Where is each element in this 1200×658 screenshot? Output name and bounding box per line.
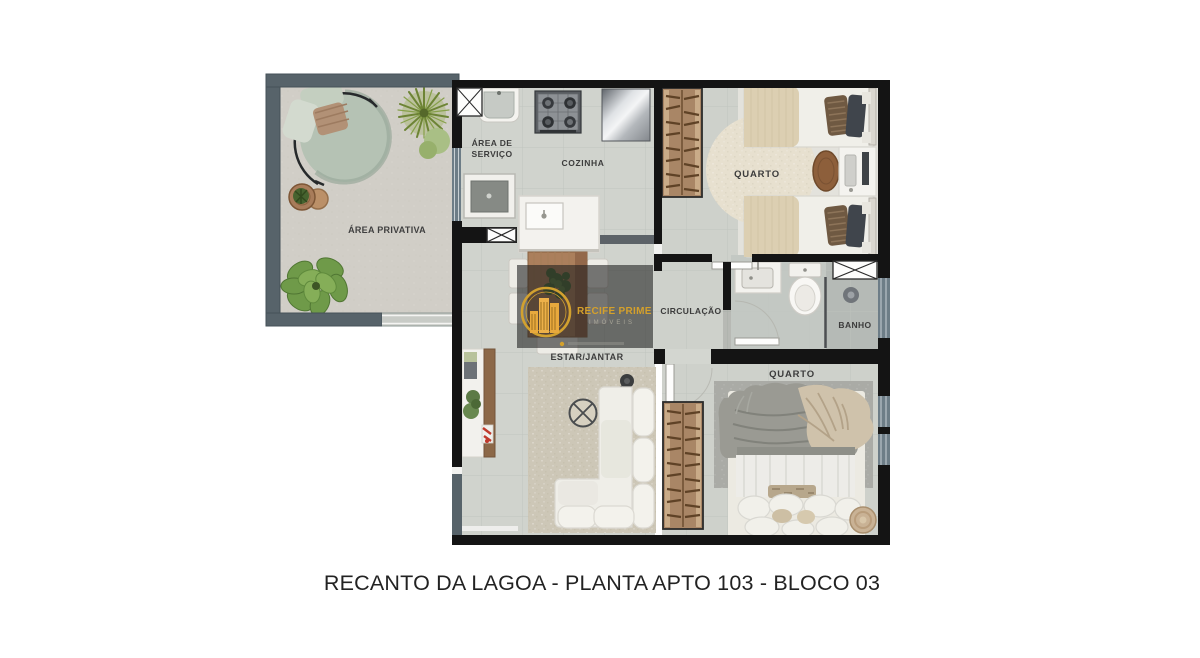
svg-text:CIRCULAÇÃO: CIRCULAÇÃO — [660, 306, 721, 316]
svg-text:ESTAR/JANTAR: ESTAR/JANTAR — [551, 352, 624, 362]
svg-text:BANHO: BANHO — [838, 320, 871, 330]
svg-text:SERVIÇO: SERVIÇO — [472, 149, 513, 159]
svg-text:RECANTO DA LAGOA - PLANTA APTO: RECANTO DA LAGOA - PLANTA APTO 103 - BLO… — [324, 571, 880, 595]
svg-text:RECIFE PRIME: RECIFE PRIME — [577, 306, 652, 317]
svg-text:QUARTO: QUARTO — [769, 369, 815, 380]
svg-text:QUARTO: QUARTO — [734, 169, 780, 180]
svg-text:IMÓVEIS: IMÓVEIS — [589, 319, 635, 326]
svg-text:ÁREA PRIVATIVA: ÁREA PRIVATIVA — [348, 225, 426, 235]
svg-text:COZINHA: COZINHA — [562, 158, 605, 168]
svg-text:ÁREA DE: ÁREA DE — [472, 138, 513, 148]
